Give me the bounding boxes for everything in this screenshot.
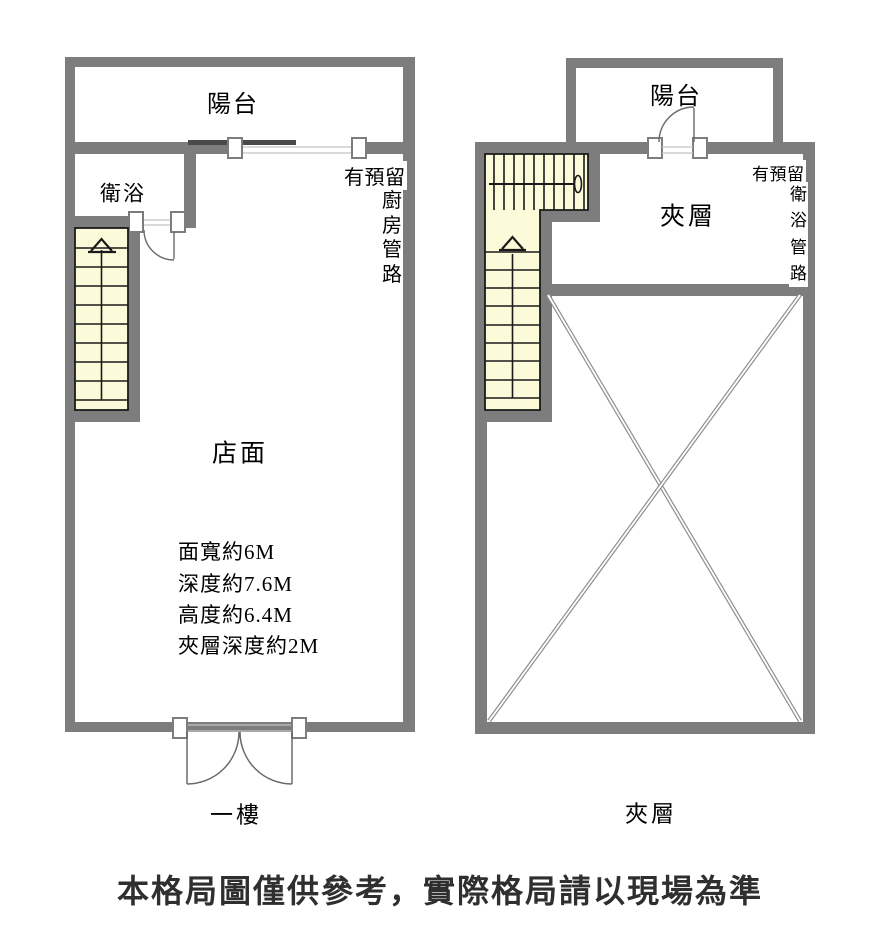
dimension-width: 面寬約6M: [178, 536, 275, 566]
balcony-label-mezzanine: 陽台: [650, 84, 702, 110]
floorplan-page: 陽台 衛浴 店面 面寬約6M 深度約7.6M 高度約6.4M 夾層深度約2M 有…: [0, 0, 888, 951]
kitchen-pipe-note-vertical: 廚房管路: [381, 189, 403, 287]
balcony-label-first-floor: 陽台: [207, 92, 259, 118]
mezzanine-room-label: 夾層: [660, 203, 716, 231]
first-floor-stairs: [75, 228, 128, 410]
floorplan-drawing: [0, 0, 888, 951]
stair-rail-end: [575, 176, 582, 193]
bathroom-label: 衛浴: [100, 182, 146, 205]
mezzanine-balcony-door-jambs: [648, 138, 707, 158]
mezzanine-caption: 夾層: [625, 801, 677, 826]
front-double-door: [187, 732, 292, 784]
dimension-depth: 深度約7.6M: [178, 568, 293, 598]
dimension-height: 高度約6.4M: [178, 599, 293, 629]
mezzanine-stairs: [485, 154, 588, 410]
kitchen-pipe-note-prefix: 有預留: [343, 161, 407, 190]
disclaimer-text: 本格局圖僅供參考，實際格局請以現場為準: [117, 866, 763, 912]
dimension-mezzanine-depth: 夾層深度約2M: [178, 630, 319, 660]
store-label: 店面: [212, 440, 268, 468]
mezzanine-balcony-door: [659, 107, 694, 153]
bathroom-door: [144, 230, 174, 260]
first-floor-caption: 一樓: [210, 802, 262, 827]
bath-pipe-note-vertical: 衛浴管路: [789, 182, 808, 287]
